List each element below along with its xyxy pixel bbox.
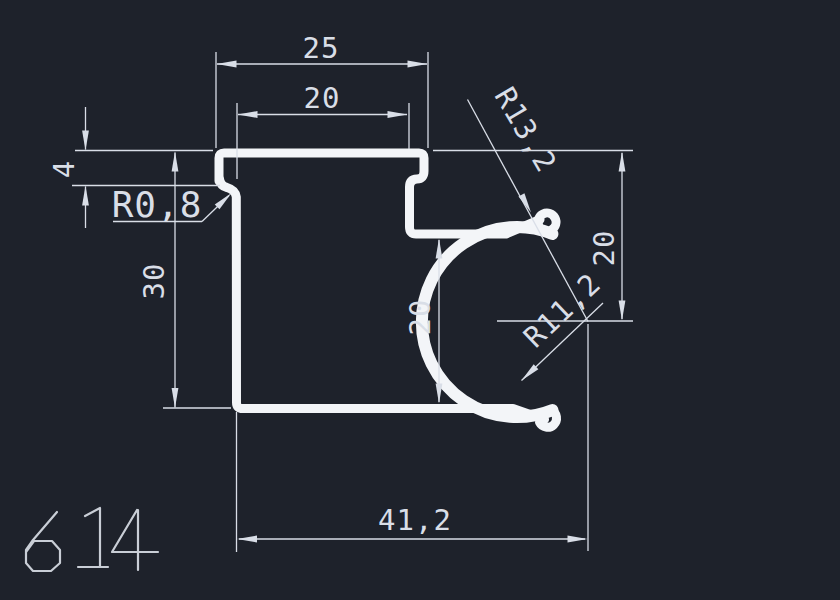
part-number-glyph-1 [78, 508, 108, 567]
part-number [26, 508, 158, 571]
part-number-glyph-4 [112, 510, 158, 570]
cad-canvas: 25 20 4 30 R0,8 R13,2 R11,2 20 20 41,2 [0, 0, 840, 600]
label-lip-height: 4 [47, 160, 81, 178]
dimension-labels: 25 20 4 30 R0,8 R13,2 R11,2 20 20 41,2 [47, 31, 621, 537]
profile-left-bottom-section [220, 179, 545, 420]
label-top-width: 25 [303, 31, 340, 65]
label-fillet-radius: R0,8 [112, 184, 203, 225]
dim-4 [82, 107, 89, 228]
label-mid-height: 20 [403, 299, 437, 336]
label-right-height: 20 [587, 230, 621, 267]
label-top-inner-width: 20 [304, 81, 341, 115]
label-left-height: 30 [137, 263, 171, 300]
profile-top-section [219, 153, 540, 234]
cad-viewport: 25 20 4 30 R0,8 R13,2 R11,2 20 20 41,2 [0, 0, 840, 600]
profile-outline [219, 153, 557, 427]
part-number-glyph-6 [26, 512, 60, 571]
label-outer-radius: R13,2 [488, 81, 564, 178]
label-bottom-width: 41,2 [378, 503, 452, 537]
